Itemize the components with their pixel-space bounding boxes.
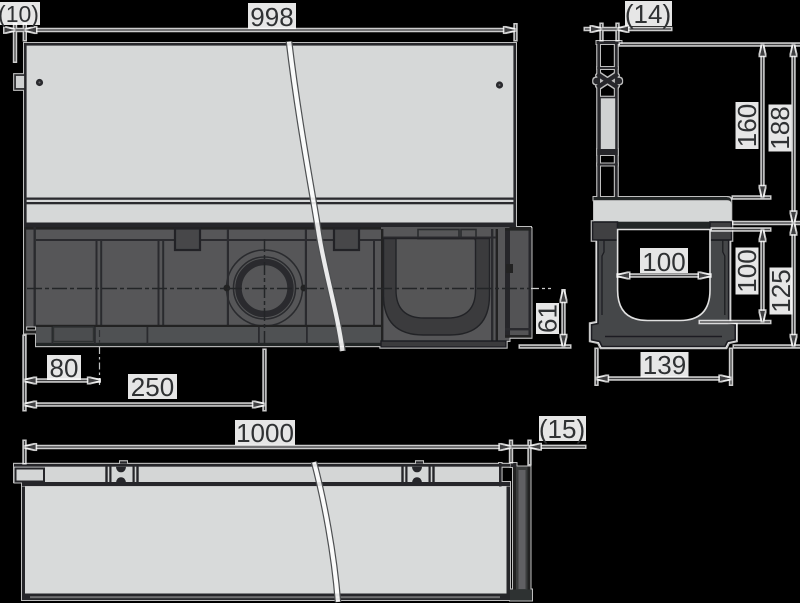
svg-text:(14): (14) <box>625 0 671 29</box>
svg-text:125: 125 <box>766 269 796 312</box>
svg-text:(10): (10) <box>0 1 39 27</box>
svg-text:188: 188 <box>765 106 795 149</box>
svg-text:250: 250 <box>131 372 174 402</box>
svg-text:100: 100 <box>642 247 685 277</box>
svg-text:(15): (15) <box>539 414 585 444</box>
svg-text:139: 139 <box>643 350 686 380</box>
svg-text:61: 61 <box>533 304 563 333</box>
svg-text:1000: 1000 <box>236 418 294 448</box>
svg-text:80: 80 <box>50 353 79 383</box>
svg-text:100: 100 <box>732 249 762 292</box>
svg-text:998: 998 <box>250 2 293 32</box>
svg-text:160: 160 <box>732 104 762 147</box>
